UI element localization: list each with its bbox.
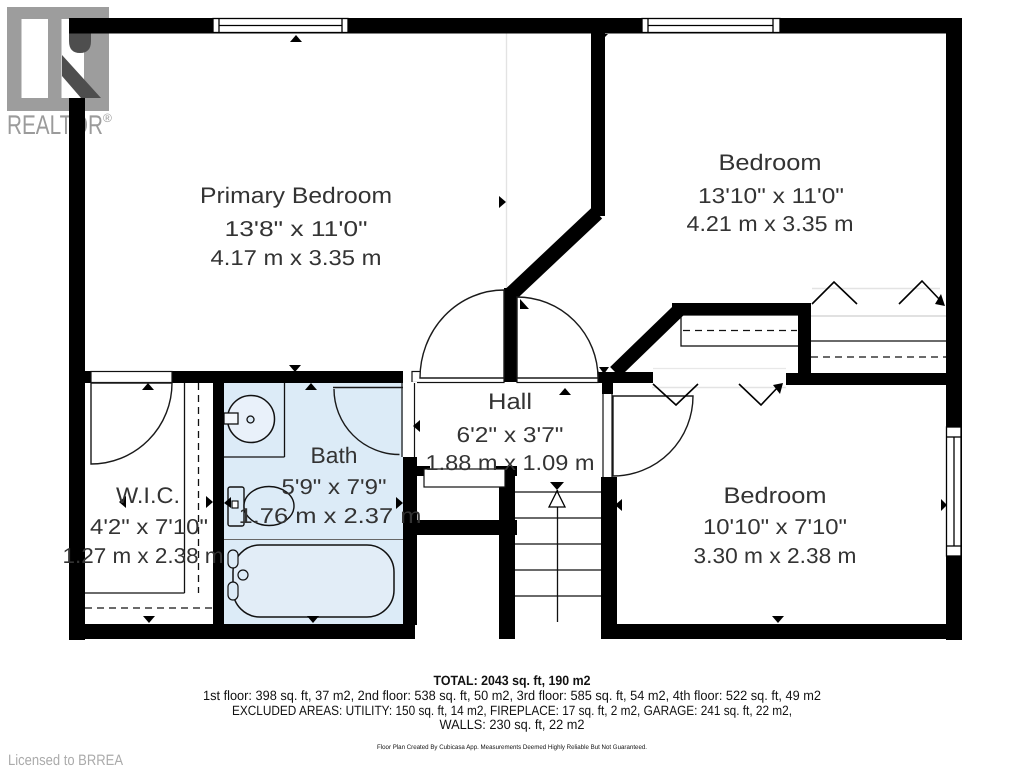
svg-text:4.21 m x 3.35 m: 4.21 m x 3.35 m: [687, 212, 854, 236]
svg-text:Licensed to BRREA: Licensed to BRREA: [8, 752, 123, 768]
svg-text:4'2" x 7'10": 4'2" x 7'10": [90, 515, 208, 539]
svg-text:Hall: Hall: [488, 389, 532, 414]
svg-text:Floor Plan Created By Cubicasa: Floor Plan Created By Cubicasa App. Meas…: [377, 744, 647, 751]
svg-text:EXCLUDED AREAS: UTILITY: 150 s: EXCLUDED AREAS: UTILITY: 150 sq. ft, 14 …: [232, 703, 792, 718]
svg-text:4.17 m x 3.35 m: 4.17 m x 3.35 m: [211, 246, 382, 270]
svg-text:Bedroom: Bedroom: [719, 150, 822, 175]
svg-text:W.I.C.: W.I.C.: [116, 483, 180, 508]
svg-text:1.27 m x 2.38 m: 1.27 m x 2.38 m: [63, 544, 224, 568]
svg-text:Primary Bedroom: Primary Bedroom: [200, 183, 392, 208]
svg-text:Bedroom: Bedroom: [724, 483, 827, 508]
svg-text:1.76 m x 2.37 m: 1.76 m x 2.37 m: [239, 504, 422, 528]
svg-text:1.88 m x 1.09 m: 1.88 m x 1.09 m: [426, 451, 595, 475]
svg-text:®: ®: [103, 111, 112, 125]
svg-text:Bath: Bath: [311, 443, 358, 468]
svg-text:13'10" x 11'0": 13'10" x 11'0": [698, 184, 844, 208]
svg-text:REALTOR: REALTOR: [7, 110, 103, 140]
svg-text:10'10" x 7'10": 10'10" x 7'10": [703, 515, 847, 539]
svg-text:6'2" x 3'7": 6'2" x 3'7": [457, 423, 564, 447]
svg-text:13'8" x 11'0": 13'8" x 11'0": [225, 217, 368, 241]
svg-text:5'9" x 7'9": 5'9" x 7'9": [282, 475, 387, 499]
svg-text:3.30 m x 2.38 m: 3.30 m x 2.38 m: [694, 544, 857, 568]
svg-text:TOTAL: 2043 sq. ft, 190 m2: TOTAL: 2043 sq. ft, 190 m2: [434, 673, 591, 688]
svg-text:1st floor: 398 sq. ft, 37 m2,: 1st floor: 398 sq. ft, 37 m2, 2nd floor:…: [203, 688, 821, 703]
svg-text:WALLS: 230 sq. ft, 22 m2: WALLS: 230 sq. ft, 22 m2: [440, 717, 585, 732]
